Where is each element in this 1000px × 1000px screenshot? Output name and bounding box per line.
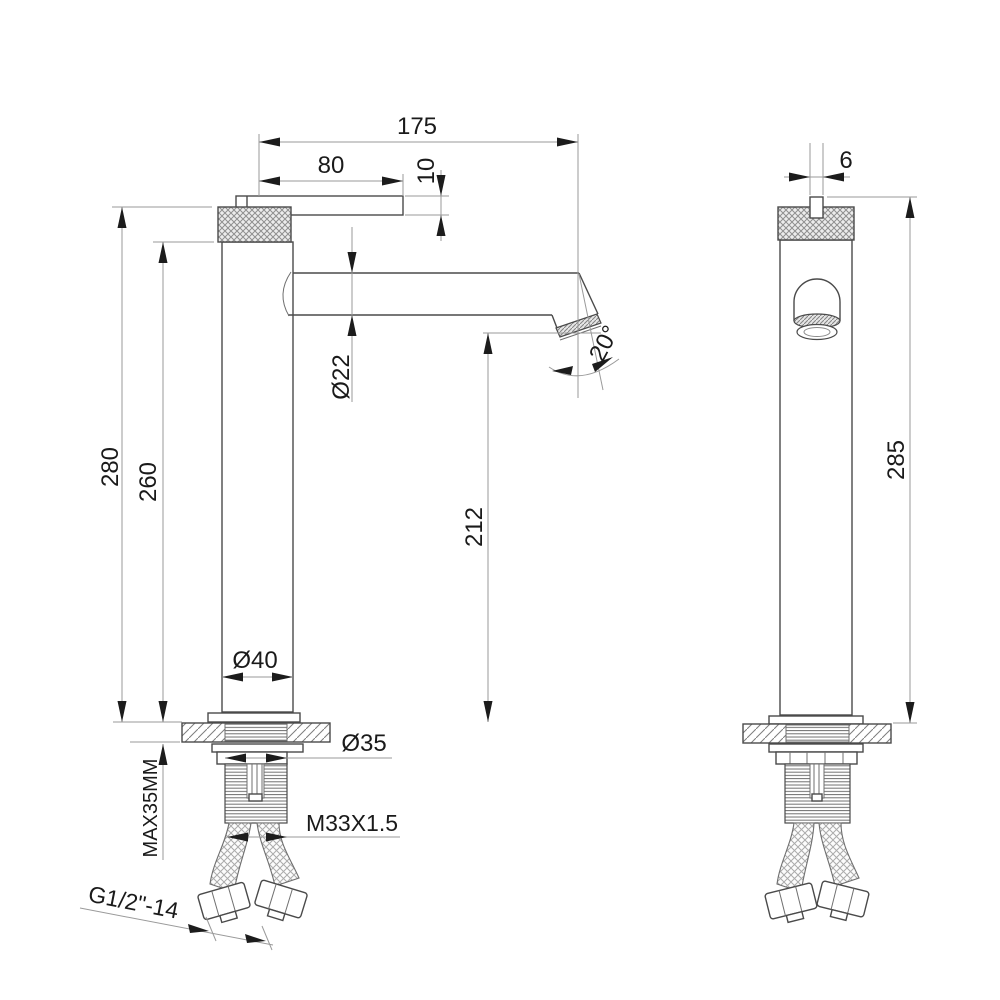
dim-label-dia22: Ø22 [328, 354, 355, 399]
shank-channel-front [810, 764, 824, 798]
knurled-cap [218, 207, 291, 242]
dim-label-175: 175 [397, 113, 437, 140]
dim-label-dia40: Ø40 [232, 647, 277, 674]
base-washer [212, 744, 303, 752]
dim-label-212: 212 [461, 507, 488, 547]
base-plate-thread-window-front [786, 725, 849, 742]
dim-label-285: 285 [883, 440, 910, 480]
dim-label-max35: MAX35MM [140, 759, 162, 858]
dim-label-10: 10 [413, 158, 440, 185]
faucet-technical-drawing: 175 80 10 Ø22 20° [0, 0, 1000, 1000]
faucet-body [222, 242, 293, 712]
dim-label-6: 6 [839, 147, 852, 174]
dim-label-80: 80 [318, 152, 345, 179]
faucet-body-front [780, 240, 852, 715]
base-washer-front [769, 744, 863, 752]
channel-end [249, 794, 262, 801]
dim-label-dia35: Ø35 [341, 730, 386, 757]
dim-label-260: 260 [135, 462, 162, 502]
dim-label-m33: M33X1.5 [306, 810, 398, 836]
base-plate-thread-window [225, 724, 287, 741]
handle-stub-front [810, 197, 823, 218]
dim-label-280: 280 [97, 447, 124, 487]
base-flange-front [769, 716, 863, 724]
aerator-face-front [797, 325, 837, 340]
mounting-nut-front [776, 752, 857, 764]
technical-drawing-page: 175 80 10 Ø22 20° [0, 0, 1000, 1000]
channel-end-front [812, 794, 822, 801]
base-flange [208, 713, 300, 722]
shank-channel [247, 764, 264, 798]
